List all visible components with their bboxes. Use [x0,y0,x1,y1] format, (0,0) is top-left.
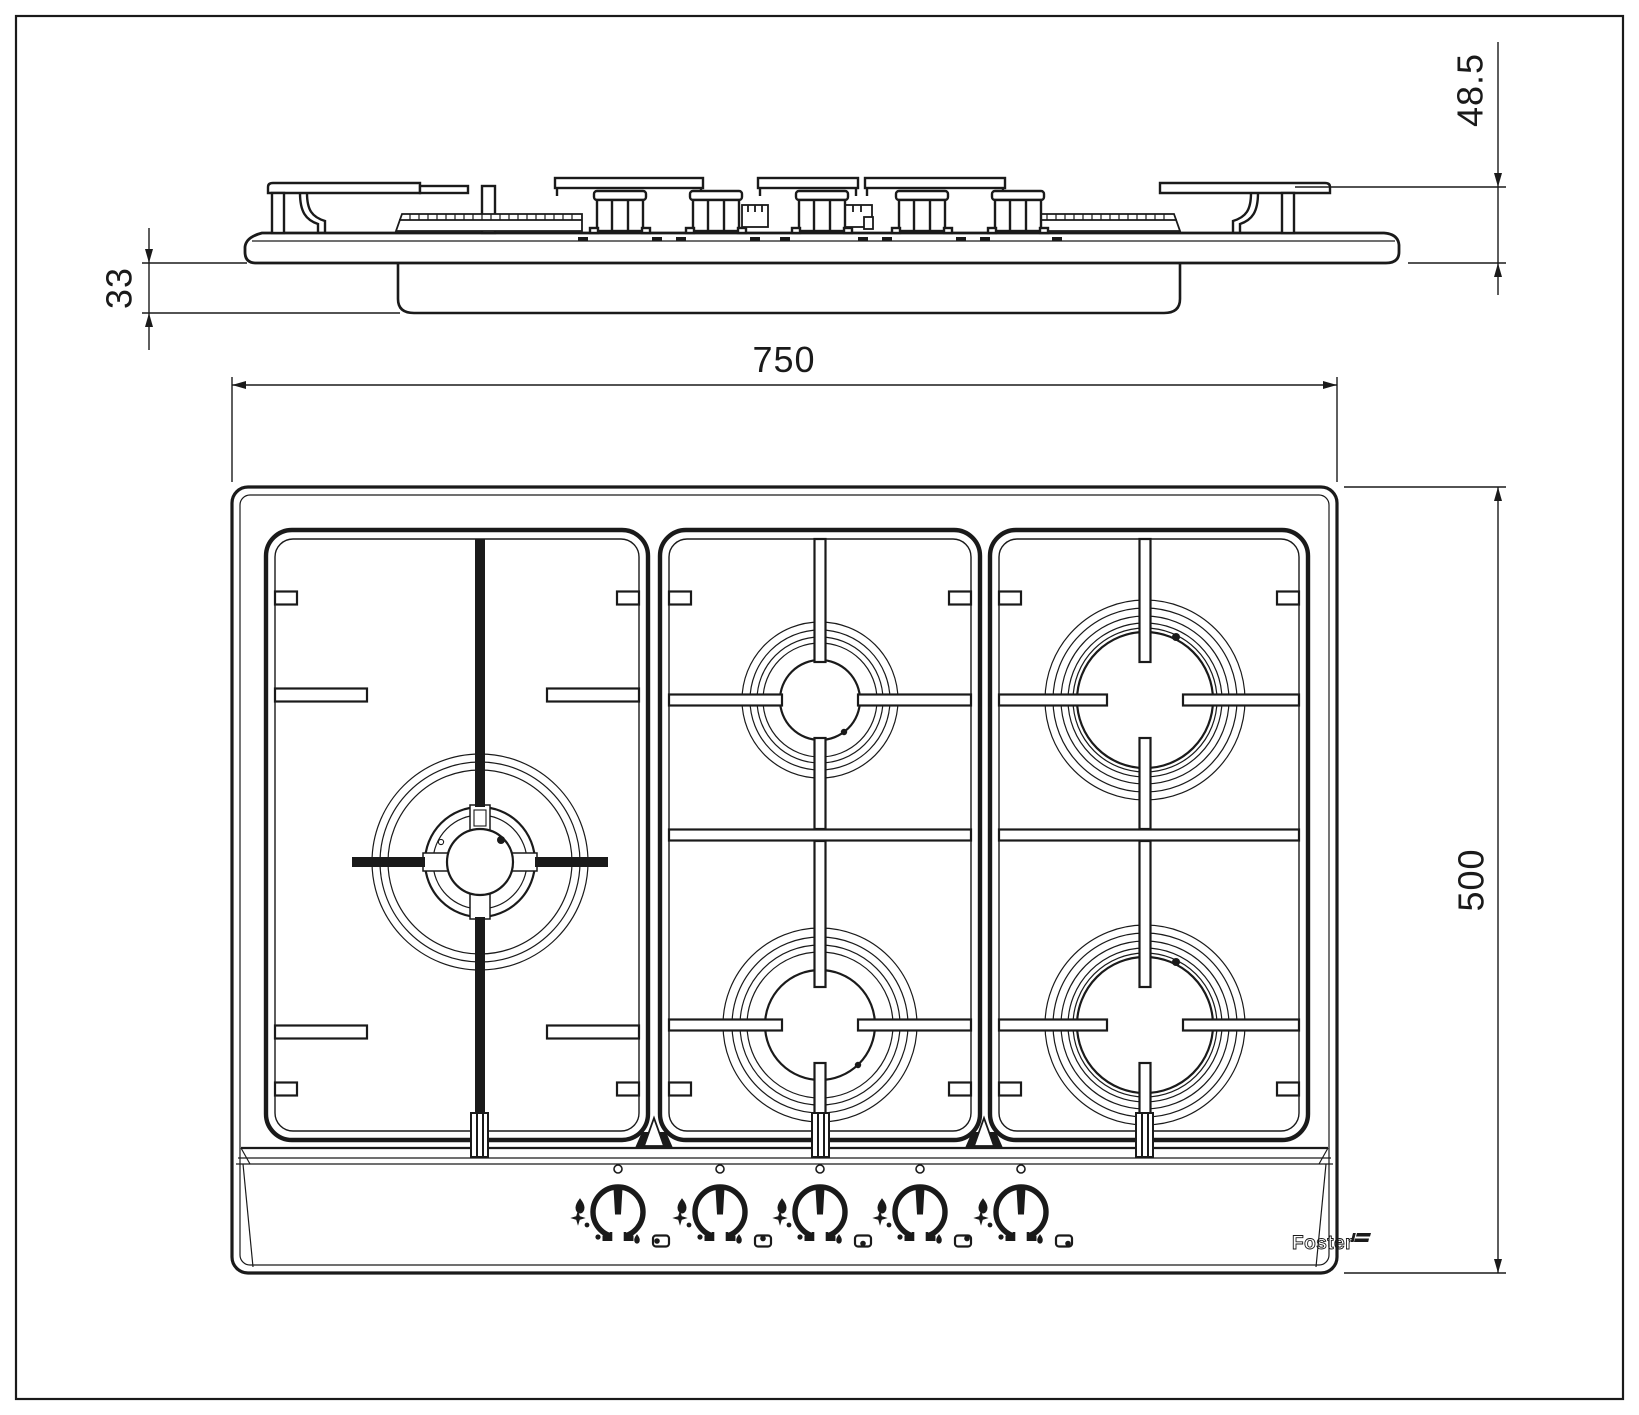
top-plan-view: Foster [232,487,1371,1273]
burner-position-icon-top-right [955,1236,971,1247]
burner-position-icon-bottom-right [1056,1236,1072,1247]
dim-label-48-5: 48.5 [1450,53,1491,127]
burner-position-icon-left [653,1236,669,1247]
dim-label-500: 500 [1451,848,1492,911]
dim-label-750: 750 [752,339,815,380]
drawing-sheet: 48.5 33 750 500 [0,0,1639,1415]
hob-outline [232,487,1337,1273]
spark-plug-dot [497,836,505,844]
dim-label-33: 33 [99,267,140,309]
side-view-burner-rail-right [1030,214,1180,231]
side-view-top-plate [245,233,1399,263]
burner-position-icon-top [755,1236,771,1247]
grate-middle-crossbar [669,830,971,841]
burner-position-icon-bottom [855,1236,871,1247]
grate-right-crossbar [999,830,1299,841]
side-view-burner-rail-left [396,214,582,231]
brand-logo-text: Foster [1292,1233,1353,1254]
